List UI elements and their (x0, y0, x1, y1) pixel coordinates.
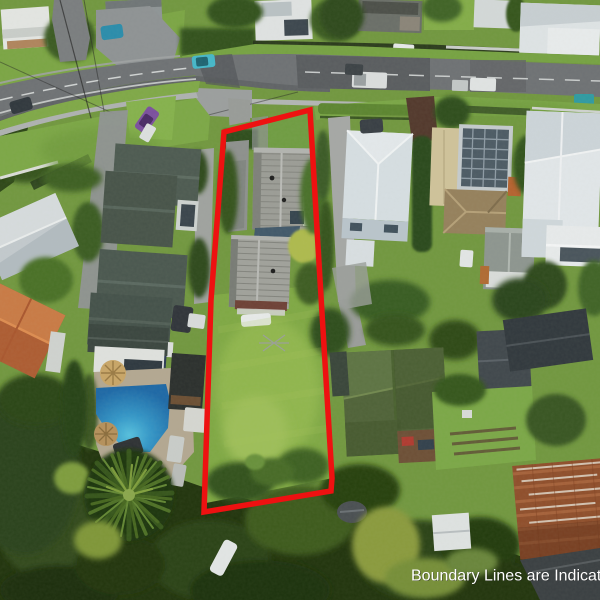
svg-text:Boundary Lines are Indicative: Boundary Lines are Indicative Only (411, 568, 600, 585)
